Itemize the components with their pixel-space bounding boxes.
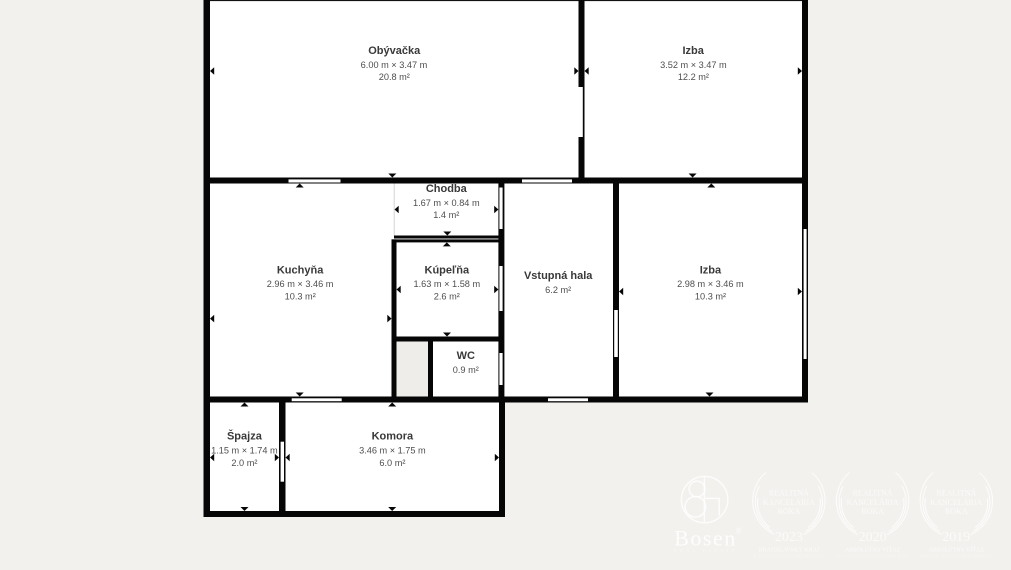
svg-text:2023: 2023 bbox=[775, 530, 803, 545]
svg-text:Špajza: Špajza bbox=[227, 430, 263, 443]
svg-text:2.98 m × 3.46 m: 2.98 m × 3.46 m bbox=[677, 279, 744, 289]
svg-text:Obývačka: Obývačka bbox=[368, 45, 421, 57]
svg-text:Izba: Izba bbox=[682, 45, 704, 57]
svg-text:WC: WC bbox=[457, 350, 475, 362]
svg-text:REALITNÁ: REALITNÁ bbox=[936, 487, 976, 497]
svg-text:2.0 m²: 2.0 m² bbox=[231, 458, 257, 468]
svg-text:Kuchyňa: Kuchyňa bbox=[277, 264, 324, 276]
svg-text:ROKA: ROKA bbox=[861, 507, 884, 516]
svg-text:ROKA: ROKA bbox=[945, 507, 968, 516]
svg-text:®: ® bbox=[735, 527, 741, 536]
svg-text:KANCELÁRIA: KANCELÁRIA bbox=[847, 497, 899, 507]
svg-text:ABSOLÚTNY VÍŤAZ: ABSOLÚTNY VÍŤAZ bbox=[929, 546, 985, 554]
svg-text:1.4 m²: 1.4 m² bbox=[433, 210, 459, 220]
svg-text:10.3 m²: 10.3 m² bbox=[285, 291, 316, 301]
svg-text:6.00 m × 3.47 m: 6.00 m × 3.47 m bbox=[361, 60, 428, 70]
svg-text:2020: 2020 bbox=[859, 530, 887, 545]
svg-text:1.67 m × 0.84 m: 1.67 m × 0.84 m bbox=[413, 198, 480, 208]
svg-text:2019: 2019 bbox=[942, 530, 970, 545]
svg-text:REAL ESTATE: REAL ESTATE bbox=[674, 548, 738, 553]
svg-text:10.3 m²: 10.3 m² bbox=[695, 291, 726, 301]
svg-text:Vstupná hala: Vstupná hala bbox=[524, 270, 593, 282]
svg-text:Bosen: Bosen bbox=[674, 526, 737, 551]
svg-text:6.0 m²: 6.0 m² bbox=[379, 458, 405, 468]
svg-text:REALITNÁ ÚNIA SLOVENSKEJ REPUB: REALITNÁ ÚNIA SLOVENSKEJ REPUBLIKY bbox=[920, 554, 992, 559]
svg-text:2.6 m²: 2.6 m² bbox=[434, 291, 460, 301]
svg-text:Chodba: Chodba bbox=[426, 183, 468, 195]
svg-text:BRATISLAVSKÝ KRAJ: BRATISLAVSKÝ KRAJ bbox=[759, 546, 820, 554]
svg-text:ROKA: ROKA bbox=[778, 507, 801, 516]
svg-text:3.52 m × 3.47 m: 3.52 m × 3.47 m bbox=[660, 60, 727, 70]
svg-text:1.63 m × 1.58 m: 1.63 m × 1.58 m bbox=[413, 279, 480, 289]
svg-text:1.15 m × 1.74 m: 1.15 m × 1.74 m bbox=[211, 446, 278, 456]
svg-text:KANCELÁRIA: KANCELÁRIA bbox=[930, 497, 982, 507]
svg-text:12.2 m²: 12.2 m² bbox=[678, 72, 709, 82]
svg-text:ABSOLÚTNY VÍŤAZ: ABSOLÚTNY VÍŤAZ bbox=[845, 546, 901, 554]
svg-text:REALITNÁ ÚNIA SLOVENSKEJ REPUB: REALITNÁ ÚNIA SLOVENSKEJ REPUBLIKY bbox=[753, 554, 825, 559]
svg-text:REALITNÁ: REALITNÁ bbox=[769, 487, 809, 497]
svg-text:REALITNÁ ÚNIA SLOVENSKEJ REPUB: REALITNÁ ÚNIA SLOVENSKEJ REPUBLIKY bbox=[837, 554, 909, 559]
svg-text:Kúpeľňa: Kúpeľňa bbox=[425, 264, 470, 276]
svg-text:Izba: Izba bbox=[700, 264, 722, 276]
svg-text:0.9 m²: 0.9 m² bbox=[453, 365, 479, 375]
svg-text:KANCELÁRIA: KANCELÁRIA bbox=[763, 497, 815, 507]
svg-text:2.96 m × 3.46 m: 2.96 m × 3.46 m bbox=[267, 279, 334, 289]
svg-text:REALITNÁ: REALITNÁ bbox=[853, 487, 893, 497]
svg-text:3.46 m × 1.75 m: 3.46 m × 1.75 m bbox=[359, 446, 426, 456]
svg-text:20.8 m²: 20.8 m² bbox=[379, 72, 410, 82]
svg-text:Komora: Komora bbox=[372, 431, 414, 443]
svg-text:6.2 m²: 6.2 m² bbox=[545, 285, 571, 295]
